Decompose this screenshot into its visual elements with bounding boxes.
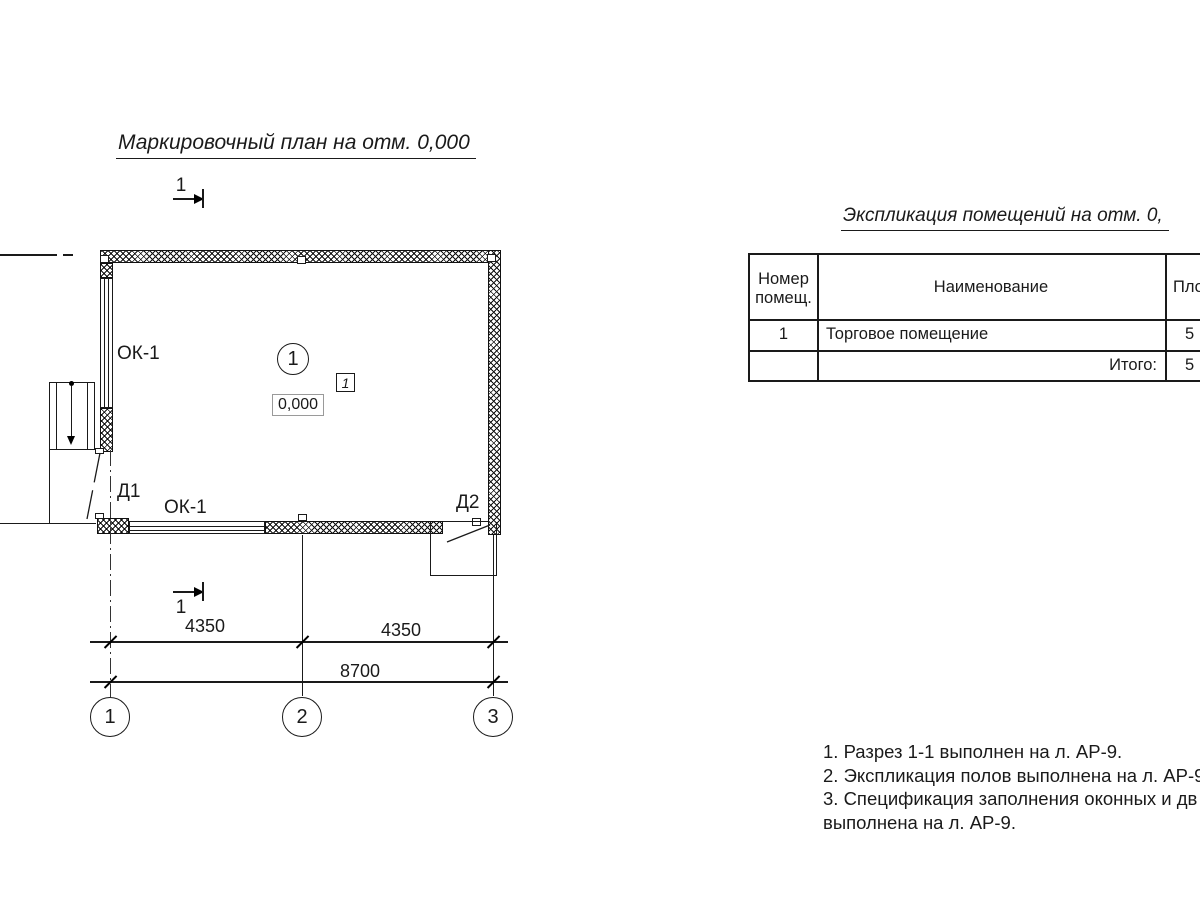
window-bottom-pane-line [130,526,264,527]
reference-line-left-dash [63,254,73,256]
porch-left-step-line [87,383,88,449]
notch-bottom-axis2 [298,514,307,521]
extension-line-axis-3 [493,535,494,696]
dimension-line-2 [90,681,508,683]
wall-left-lower [100,408,113,452]
table-cell-total-label: Итого: [817,350,1165,380]
porch-left-side-line [49,450,50,524]
note-line-4: выполнена на л. АР-9. [823,811,1200,835]
axis-number: 2 [296,706,307,729]
table-cell-total-area: 5 [1165,350,1200,380]
notch-door1-top-jamb [95,448,104,454]
window-left [100,278,113,408]
plan-title: Маркировочный план на отм. 0,000 [116,131,476,159]
window-left-pane-line [108,279,109,407]
note-line-2: 2. Экспликация полов выполнена на л. АР-… [823,764,1200,788]
elevation-mark: 0,000 [272,394,324,416]
header-number-line2: помещ. [755,289,812,308]
section-mark-top-label: 1 [170,175,192,197]
window-bottom-pane-line [130,530,264,531]
table-cell-room-number: 1 [750,319,817,350]
floor-type-tag: 1 [336,373,355,392]
label-window-left: ОК-1 [117,343,160,365]
table-header-number: Номер помещ. [750,269,817,309]
notes-block: 1. Разрез 1-1 выполнен на л. АР-9. 2. Эк… [823,740,1200,834]
notch-top-axis2 [297,256,306,264]
dim-value-right: 4350 [371,620,431,641]
note-line-3: 3. Спецификация заполнения оконных и дв [823,787,1200,811]
explication-section: Экспликация помещений на отм. 0, Номер п… [740,195,1200,395]
porch-right [430,522,497,576]
room-number-tag: 1 [277,343,309,375]
label-door-1: Д1 [117,481,140,503]
table-header-area: Пло [1165,255,1200,319]
notch-top-left [100,255,109,263]
axis-bubble-1: 1 [90,697,130,737]
axis-number: 3 [487,706,498,729]
elevation-value: 0,000 [278,396,318,414]
explication-table: Номер помещ. Наименование Пло 1 Торговое… [748,253,1200,382]
axis-number: 1 [104,706,115,729]
label-window-bottom: ОК-1 [164,497,207,519]
section-arrow-top-tick [202,189,204,208]
window-bottom [129,521,265,534]
floor-plan: Маркировочный план на отм. 0,000 1 [0,0,760,900]
terrace-edge-line [0,523,96,524]
header-number-line1: Номер [758,270,809,289]
stair-arrow-head-icon [67,436,75,445]
table-cell-room-name: Торговое помещение [817,319,1165,350]
window-left-pane-line [104,279,105,407]
label-door-2: Д2 [456,492,479,514]
table-header-name: Наименование [817,255,1165,319]
dim-value-left: 4350 [175,616,235,637]
reference-line-left [0,254,57,256]
extension-line-axis-2 [302,535,303,696]
porch-left-step-line [56,383,57,449]
page: { "colors": { "ink": "#1a1a1a", "backgro… [0,0,1200,900]
stair-arrow-stem [71,386,72,437]
porch-left [49,382,95,450]
wall-bottom-left-corner [97,518,129,534]
note-line-1: 1. Разрез 1-1 выполнен на л. АР-9. [823,740,1200,764]
notch-top-right [487,254,496,262]
table-cell-room-area: 5 [1165,319,1200,350]
dim-value-total: 8700 [330,661,390,682]
section-arrow-bottom-tick [202,582,204,601]
wall-left-upper [100,263,113,278]
wall-bottom-mid [265,521,443,534]
axis-line-1 [110,450,111,697]
notch-door1-bottom-jamb [95,513,104,519]
table-cell-empty [750,350,817,380]
axis-bubble-2: 2 [282,697,322,737]
door1-leaf [87,453,100,519]
floor-type-number: 1 [342,375,350,391]
room-number: 1 [287,348,298,371]
table-title: Экспликация помещений на отм. 0, [841,205,1169,231]
axis-bubble-3: 3 [473,697,513,737]
wall-right [488,250,501,535]
